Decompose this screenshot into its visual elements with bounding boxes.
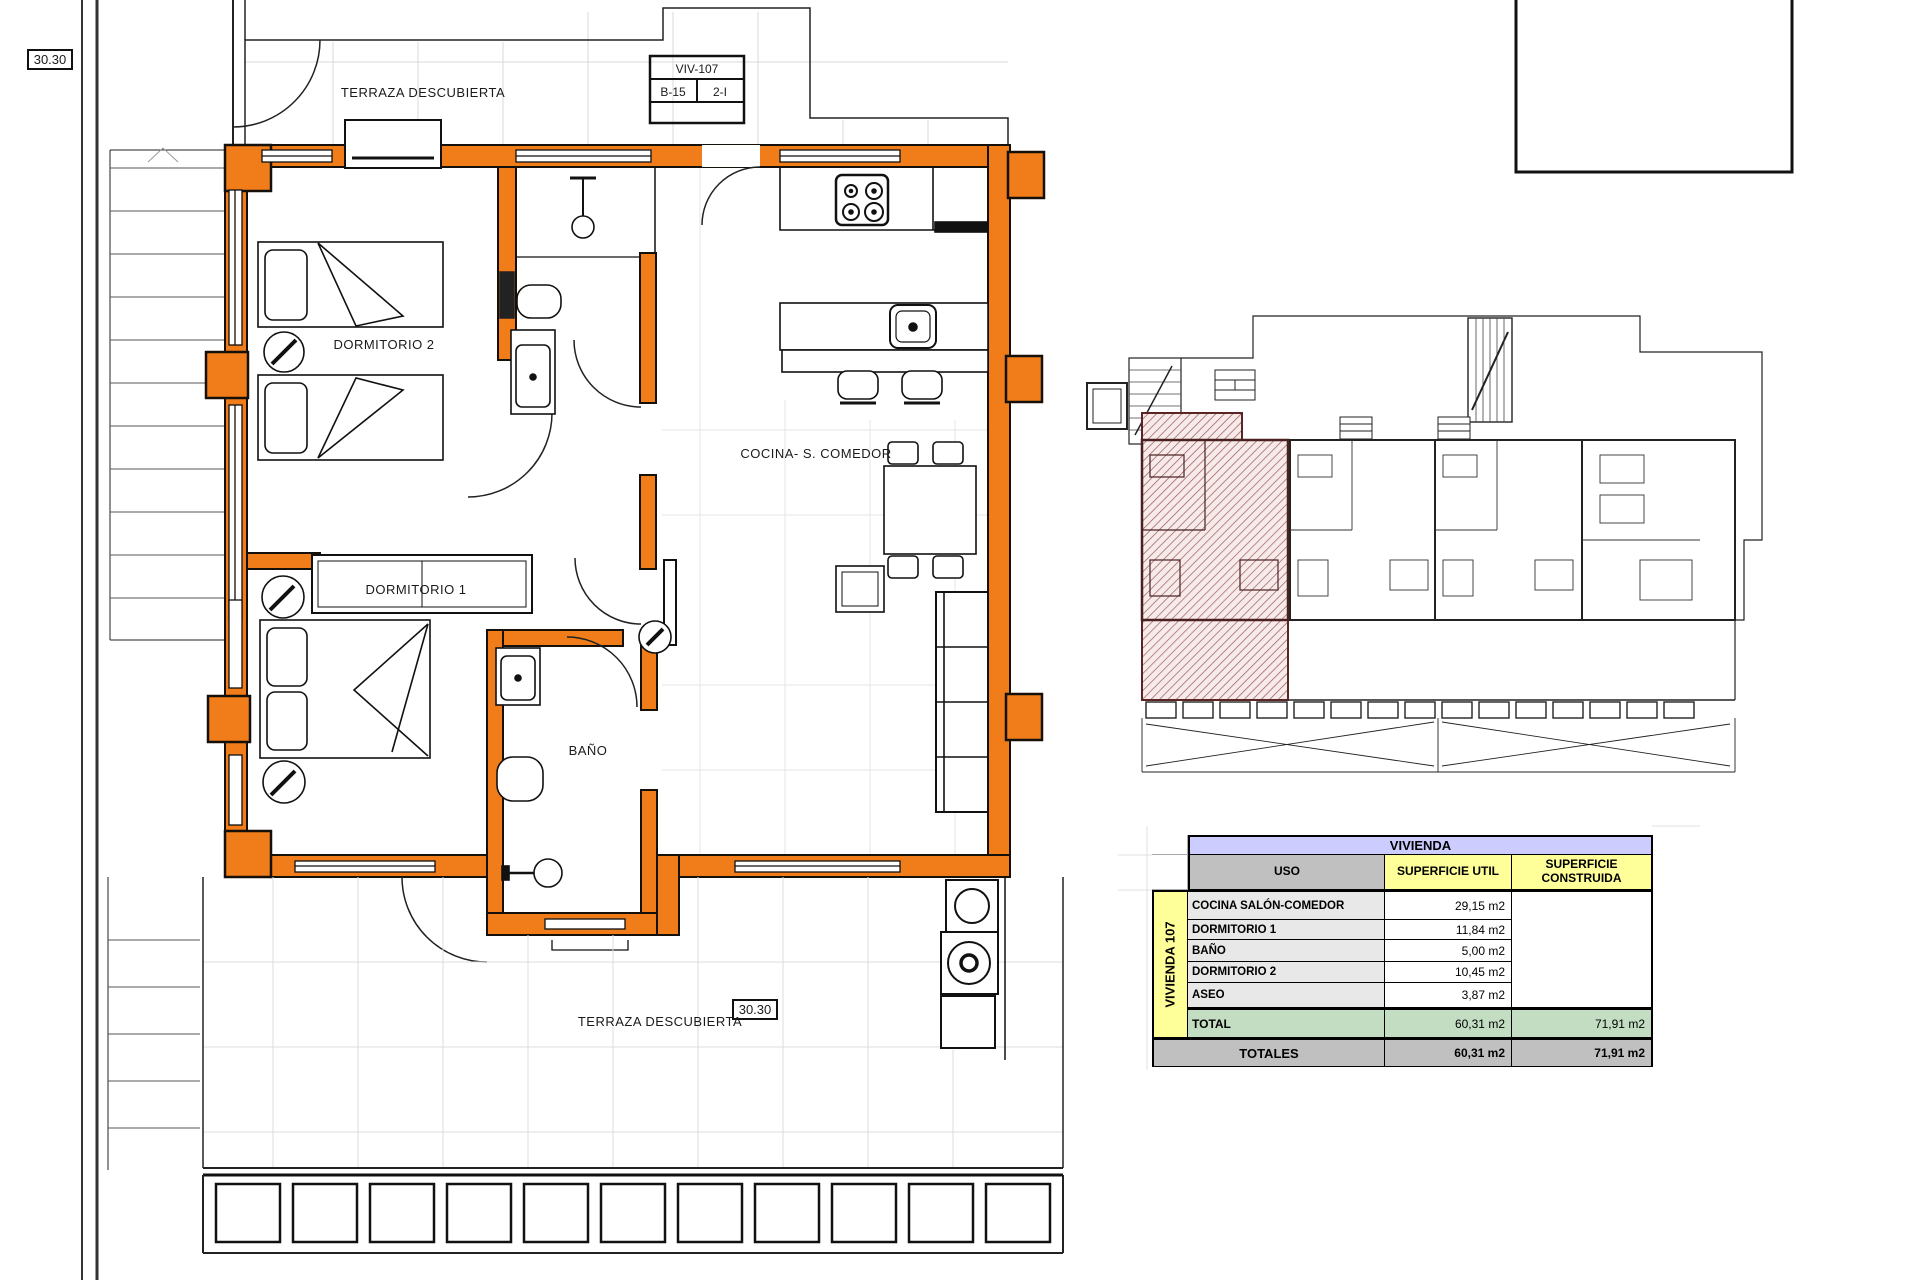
title-block-building: B-15	[660, 85, 686, 99]
row-util: 29,15 m2	[1385, 890, 1512, 920]
table-spacer	[1152, 835, 1188, 855]
total-util: 60,31 m2	[1385, 1008, 1512, 1038]
terraza-bottom-label: TERRAZA DESCUBIERTA	[578, 1014, 742, 1029]
title-block-unit: VIV-107	[676, 62, 719, 76]
row-uso: ASEO	[1188, 983, 1385, 1008]
highlighted-unit-hatch	[1142, 413, 1288, 700]
row-util: 5,00 m2	[1385, 940, 1512, 962]
cocina-label: COCINA- S. COMEDOR	[740, 446, 891, 461]
total-construida: 71,91 m2	[1512, 1008, 1653, 1038]
terraza-top-label: TERRAZA DESCUBIERTA	[341, 85, 505, 100]
terrace-door-arc-bottom	[402, 877, 487, 962]
dormitorio2-label: DORMITORIO 2	[333, 337, 434, 352]
aseo-door-leaf	[500, 272, 514, 318]
floor-plan-drawing: TERRAZA DESCUBIERTA VIV-107 B-15 2-I 30.…	[0, 0, 1920, 1280]
table-spacer	[1152, 855, 1188, 890]
totales-construida: 71,91 m2	[1512, 1038, 1653, 1067]
totales-util: 60,31 m2	[1385, 1038, 1512, 1067]
terrace-door-arc	[233, 40, 320, 127]
outdoor-fixtures	[941, 877, 1005, 1060]
inset-railing	[1146, 702, 1694, 718]
floor-plan-sheet: TERRAZA DESCUBIERTA VIV-107 B-15 2-I 30.…	[0, 0, 1920, 1280]
col-header-superficie-construida: SUPERFICIE CONSTRUIDA	[1512, 855, 1653, 890]
total-label: TOTAL	[1188, 1008, 1385, 1038]
area-summary-table: VIVIENDA USO SUPERFICIE UTIL SUPERFICIE …	[1152, 835, 1653, 1067]
col-header-superficie-util: SUPERFICIE UTIL	[1385, 855, 1512, 890]
terrace-railing	[216, 1184, 1050, 1242]
key-plan-inset	[1087, 316, 1762, 772]
row-util: 3,87 m2	[1385, 983, 1512, 1008]
row-uso: BAÑO	[1188, 940, 1385, 962]
dim-top-left: 30.30	[34, 52, 67, 67]
construida-blank	[1512, 890, 1653, 1008]
title-block: VIV-107 B-15 2-I	[650, 56, 744, 123]
dim-bottom-terrace: 30.30	[739, 1002, 772, 1017]
row-uso: DORMITORIO 1	[1188, 920, 1385, 940]
row-util: 11,84 m2	[1385, 920, 1512, 940]
row-uso: DORMITORIO 2	[1188, 962, 1385, 983]
row-util: 10,45 m2	[1385, 962, 1512, 983]
row-uso: COCINA SALÓN-COMEDOR	[1188, 890, 1385, 920]
totales-label: TOTALES	[1152, 1038, 1385, 1067]
table-title: VIVIENDA	[1188, 835, 1653, 855]
group-label-vivienda-107: VIVIENDA 107	[1152, 890, 1188, 1038]
bano-label: BAÑO	[569, 743, 608, 758]
col-header-uso: USO	[1188, 855, 1385, 890]
dormitorio1-label: DORMITORIO 1	[365, 582, 466, 597]
left-stairwell	[108, 148, 225, 1170]
inset-mini-title-blocks	[1215, 370, 1470, 439]
main-apartment: DORMITORIO 2 DORMITORIO 1 BAÑO COCINA- S…	[206, 120, 1044, 962]
title-block-floor: 2-I	[713, 85, 727, 99]
